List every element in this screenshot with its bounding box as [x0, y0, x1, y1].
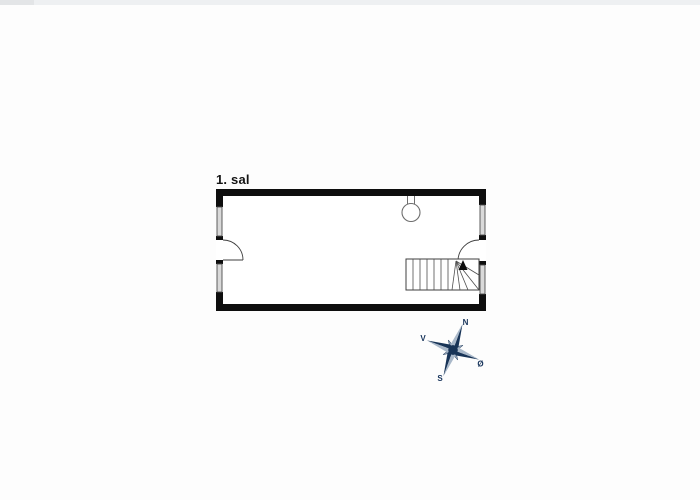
stair-outline — [406, 259, 479, 290]
compass-label-east: Ø — [477, 360, 483, 369]
wall-left-seg — [216, 196, 223, 207]
wall-right-seg — [479, 196, 486, 205]
wall-left-seg — [216, 292, 223, 304]
wall-right-seg — [479, 294, 486, 304]
room-interior — [216, 189, 486, 311]
wall-right-seg — [479, 261, 486, 265]
compass-label-south: S — [437, 374, 443, 383]
window-symbol-left-upper — [217, 207, 222, 236]
wall-bottom — [216, 304, 486, 311]
window-symbol-right-upper — [480, 205, 485, 235]
wall-left-seg — [216, 260, 223, 264]
floorplan-page: 1. sal — [0, 0, 700, 500]
compass-star — [417, 314, 489, 386]
floorplan-drawing: N V Ø S — [0, 0, 700, 500]
compass-rose-icon: N V Ø S — [417, 314, 489, 386]
staircase — [406, 259, 479, 290]
wall-top — [216, 189, 486, 196]
wall-left-seg — [216, 236, 223, 240]
window-symbol-right-lower — [480, 265, 485, 294]
compass-label-west: V — [420, 334, 426, 343]
compass-label-north: N — [463, 318, 469, 327]
window-symbol-left-lower — [217, 264, 222, 292]
wall-right-seg — [479, 235, 486, 240]
